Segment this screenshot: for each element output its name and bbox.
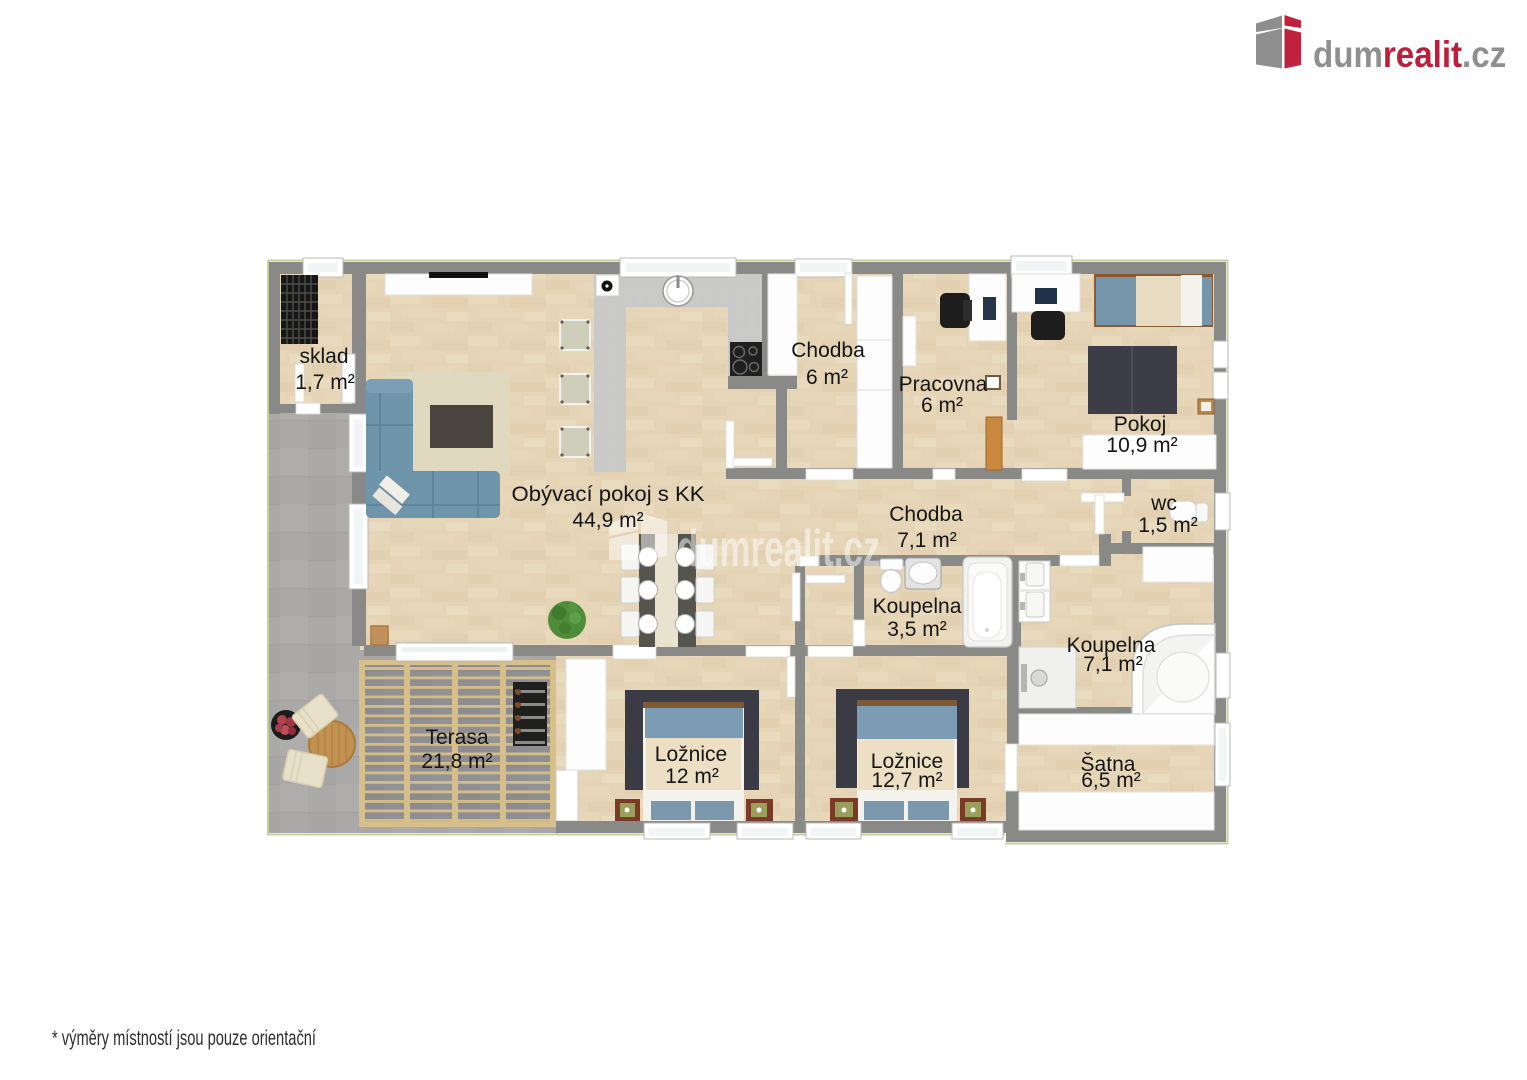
svg-text:Terasa: Terasa [425, 726, 488, 749]
svg-text:7,1 m²: 7,1 m² [1083, 653, 1143, 676]
svg-text:7,1 m²: 7,1 m² [897, 529, 957, 552]
svg-text:Pokoj: Pokoj [1114, 413, 1167, 436]
svg-text:6,5 m²: 6,5 m² [1081, 769, 1141, 792]
svg-text:1,5 m²: 1,5 m² [1138, 514, 1198, 537]
svg-text:Pracovna: Pracovna [899, 373, 988, 396]
svg-text:Obývací pokoj s KK: Obývací pokoj s KK [512, 483, 705, 506]
svg-text:Ložnice: Ložnice [655, 743, 727, 766]
svg-text:44,9 m²: 44,9 m² [572, 509, 643, 532]
svg-text:6 m²: 6 m² [921, 394, 963, 417]
svg-text:3,5 m²: 3,5 m² [887, 618, 947, 641]
svg-text:* výměry místností jsou pouze: * výměry místností jsou pouze orientační [52, 1027, 316, 1050]
svg-text:wc: wc [1150, 492, 1177, 515]
svg-text:dumrealit.cz: dumrealit.cz [1313, 34, 1506, 75]
svg-text:sklad: sklad [299, 345, 348, 368]
svg-text:6 m²: 6 m² [806, 366, 848, 389]
svg-text:12,7 m²: 12,7 m² [871, 769, 942, 792]
svg-text:Chodba: Chodba [889, 503, 963, 526]
svg-text:10,9 m²: 10,9 m² [1106, 434, 1177, 457]
svg-text:Chodba: Chodba [791, 339, 865, 362]
svg-text:1,7 m²: 1,7 m² [295, 371, 355, 394]
svg-text:21,8 m²: 21,8 m² [421, 750, 492, 773]
svg-text:12 m²: 12 m² [665, 765, 719, 788]
svg-text:dumrealit.cz: dumrealit.cz [677, 520, 880, 578]
svg-text:Koupelna: Koupelna [873, 595, 962, 618]
